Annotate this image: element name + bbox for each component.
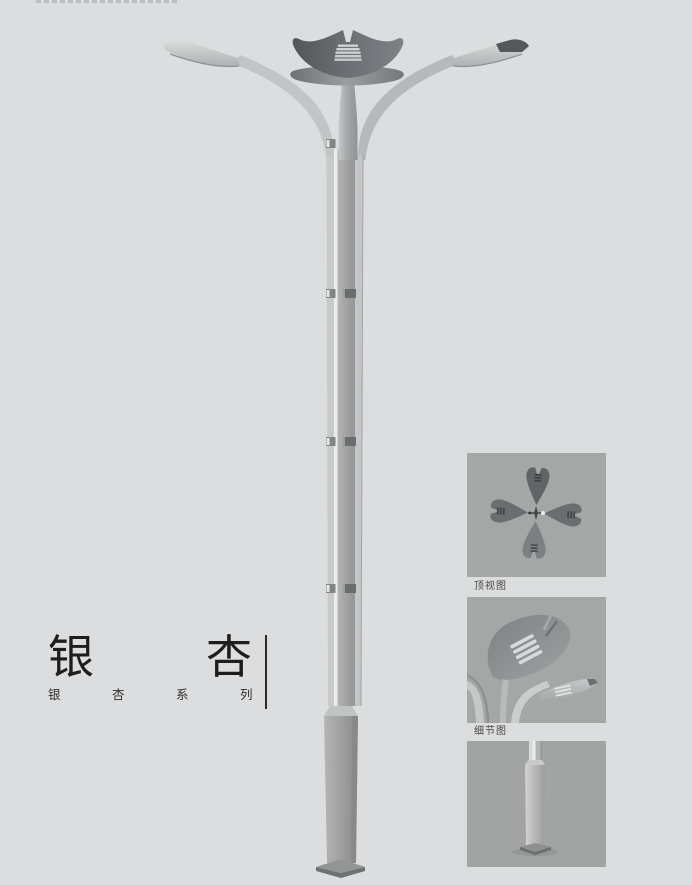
catalog-page: 银杏 银杏系列 [0, 0, 692, 885]
detail-drawing [467, 597, 606, 723]
detail-thumbnail [467, 597, 606, 723]
thumbnail-column: 顶视图 [467, 453, 606, 867]
lamp-base [316, 706, 365, 878]
product-title: 银杏 [48, 634, 278, 680]
top-view-label: 顶视图 [467, 577, 606, 597]
title-divider [265, 635, 267, 709]
lamp-head-right [452, 39, 529, 66]
base-thumbnail [467, 741, 606, 867]
lamp-head-left [163, 39, 240, 66]
lamp-pole [327, 150, 364, 706]
top-view-thumbnail [467, 453, 606, 577]
base-drawing [467, 741, 606, 867]
series-subtitle: 银杏系列 [48, 689, 278, 702]
title-block: 银杏 银杏系列 [48, 634, 278, 702]
base-column [525, 760, 545, 847]
crown-stem [339, 80, 358, 160]
detail-label: 细节图 [467, 723, 606, 741]
top-view-drawing [467, 453, 606, 577]
